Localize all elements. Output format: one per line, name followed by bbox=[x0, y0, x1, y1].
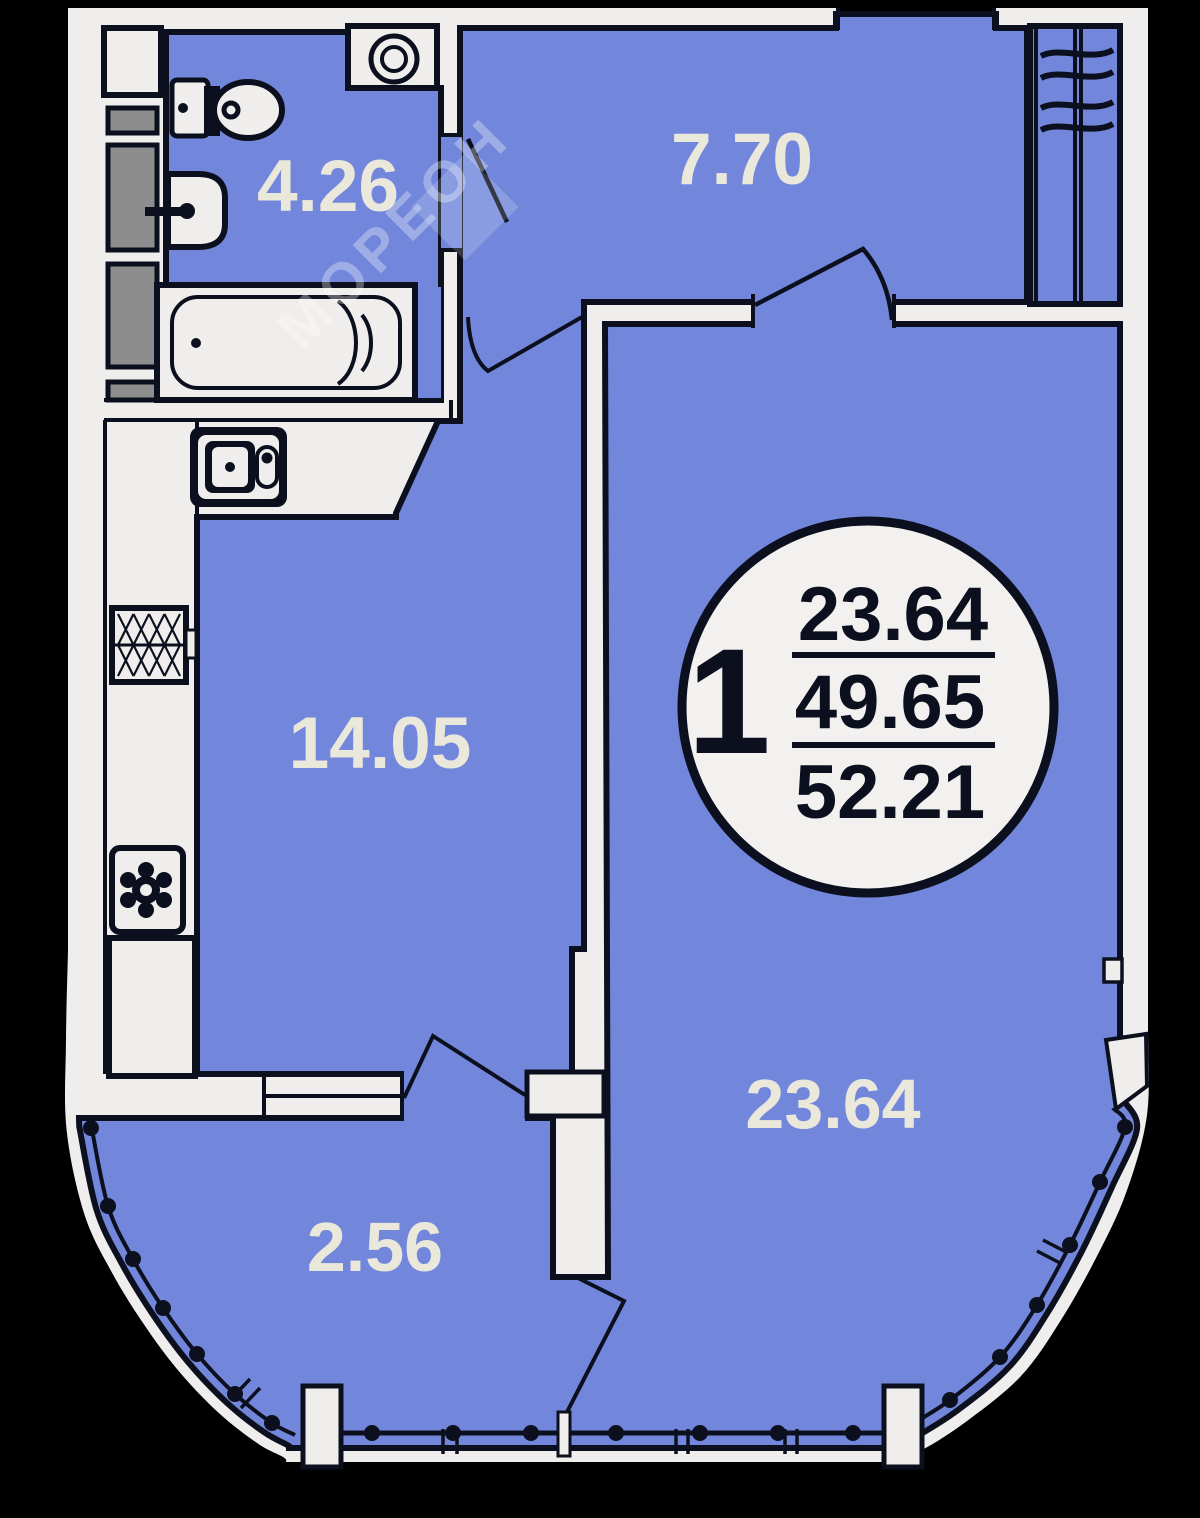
svg-text:14.05: 14.05 bbox=[289, 703, 472, 784]
svg-text:23.64: 23.64 bbox=[798, 572, 988, 657]
svg-text:7.70: 7.70 bbox=[671, 119, 813, 200]
svg-text:23.64: 23.64 bbox=[745, 1065, 920, 1143]
svg-text:2.56: 2.56 bbox=[307, 1208, 443, 1286]
svg-text:49.65: 49.65 bbox=[795, 660, 985, 745]
svg-text:1: 1 bbox=[687, 617, 770, 785]
svg-text:52.21: 52.21 bbox=[795, 750, 985, 835]
